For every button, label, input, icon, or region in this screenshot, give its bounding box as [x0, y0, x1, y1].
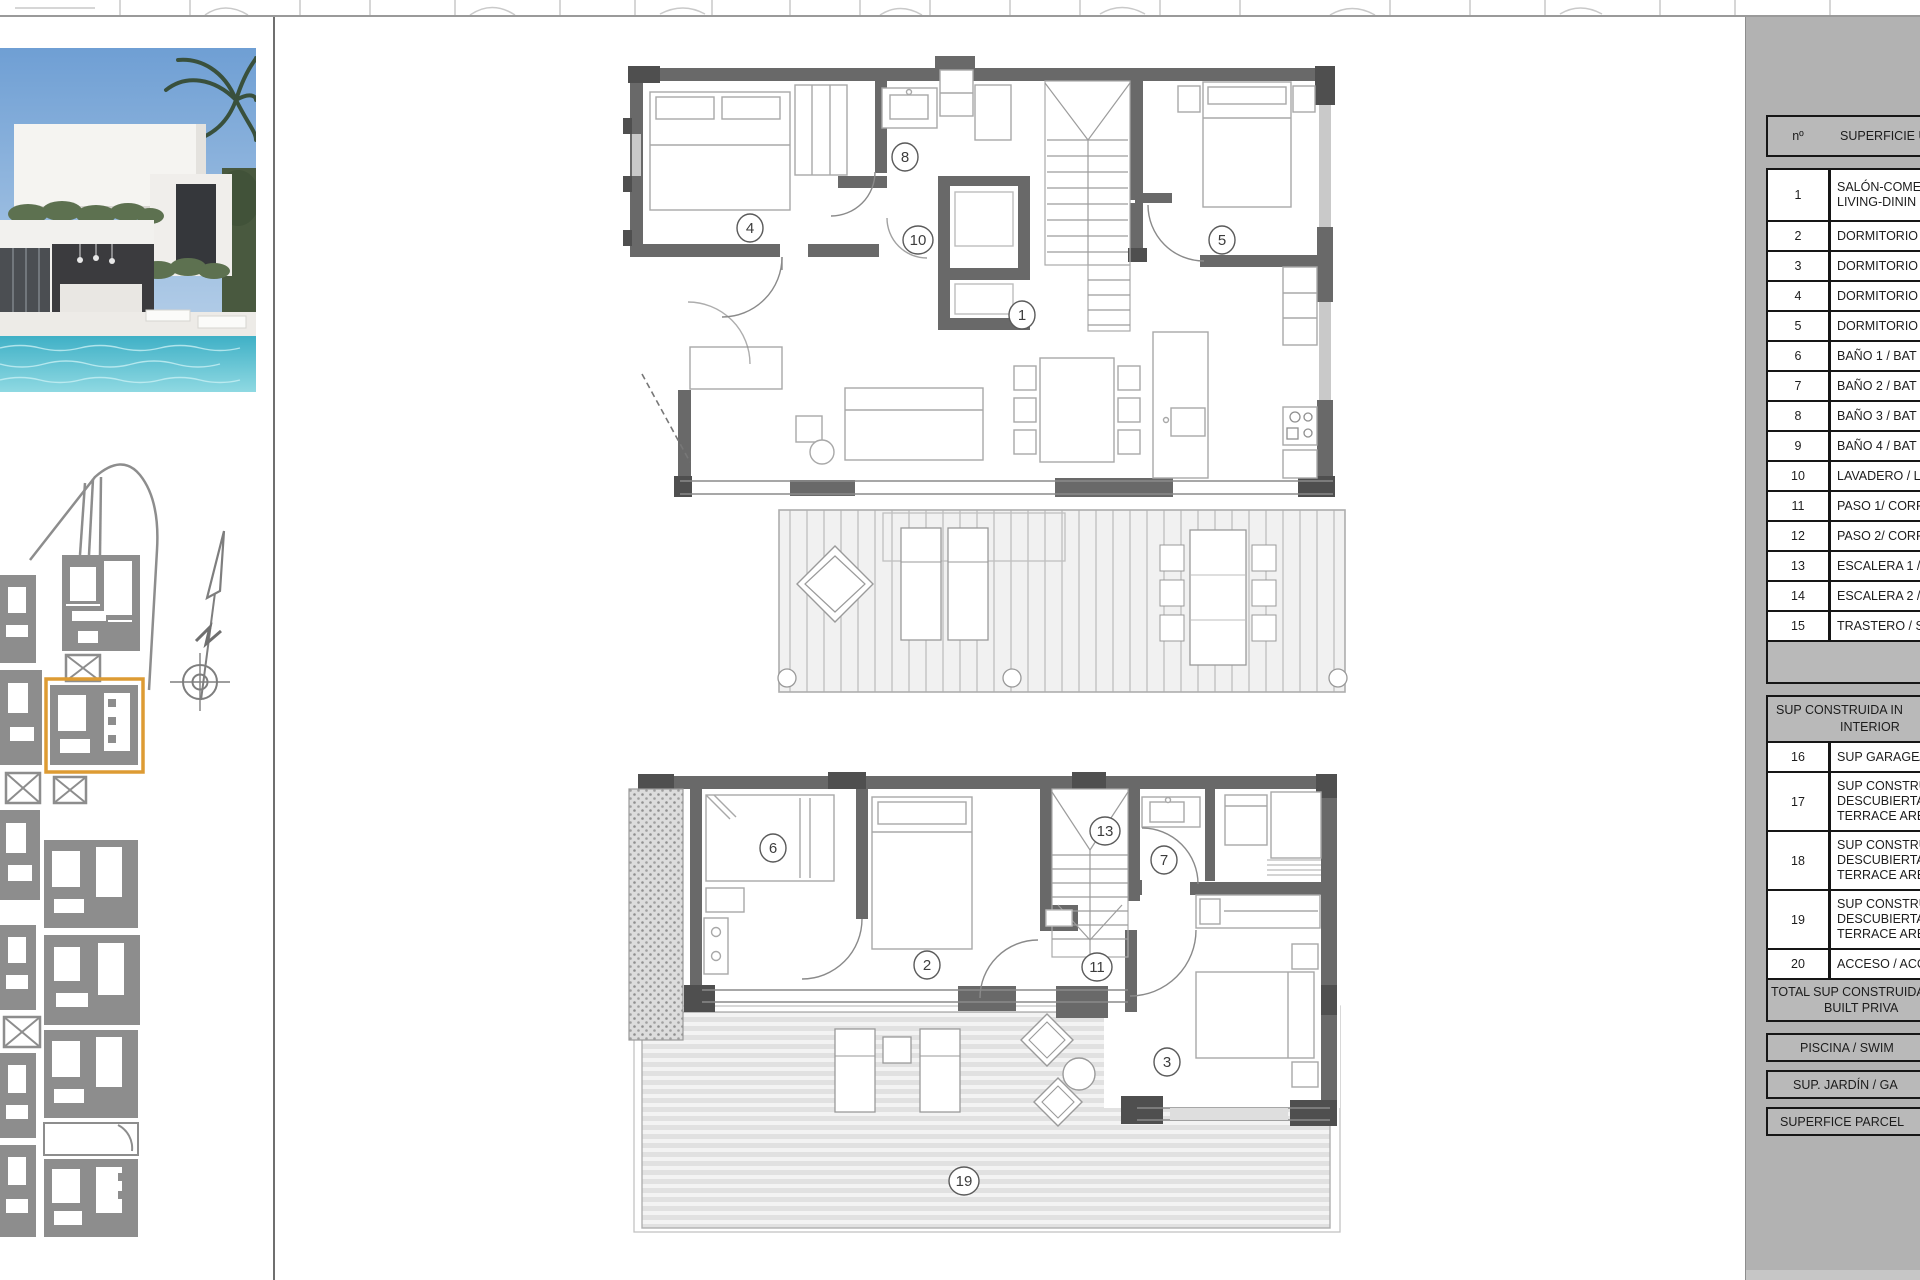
room-label-10: 10 — [903, 226, 933, 254]
total-line: TOTAL SUP CONSTRUIDA — [1768, 984, 1920, 1000]
row-desc: DESCUBIERTA — [1837, 794, 1920, 809]
row-num: 18 — [1768, 832, 1831, 889]
table-row: 4DORMITORIO — [1768, 282, 1920, 312]
vertical-divider — [273, 17, 275, 1280]
lounger — [146, 310, 190, 321]
table-gap — [1766, 157, 1920, 168]
room-label-7: 7 — [1151, 846, 1177, 874]
lounger — [198, 316, 246, 328]
table-row: 1 SALÓN-COMELIVING-DININ — [1768, 170, 1920, 222]
room-label-8: 8 — [892, 143, 918, 171]
top-crop-remnants — [0, 0, 1920, 15]
row-desc: SUP CONSTRU — [1837, 838, 1920, 853]
sheet-top-rule — [0, 15, 1920, 17]
villa-photo-art — [0, 48, 256, 392]
row-desc: DESCUBIERTA — [1837, 853, 1920, 868]
plot-surface-row: SUPERFICE PARCEL — [1766, 1107, 1920, 1136]
svg-text:6: 6 — [769, 840, 777, 857]
site-units — [0, 464, 157, 1237]
room-label-11: 11 — [1082, 953, 1112, 981]
row-desc: DORMITORIO — [1837, 229, 1920, 244]
row-desc: TERRACE AREA — [1837, 809, 1920, 824]
svg-text:13: 13 — [1097, 823, 1114, 840]
table-gap — [1766, 1099, 1920, 1107]
table-gap — [1766, 1022, 1920, 1033]
row-desc: BAÑO 2 / BAT — [1837, 379, 1920, 394]
site-plan — [0, 455, 250, 1245]
row-num: 13 — [1768, 552, 1831, 580]
svg-text:4: 4 — [746, 220, 754, 237]
table-row: 8BAÑO 3 / BAT — [1768, 402, 1920, 432]
table-row: 13ESCALERA 1 / — [1768, 552, 1920, 582]
svg-text:19: 19 — [956, 1173, 973, 1190]
tower-window — [176, 184, 216, 268]
row-desc: TERRACE AREA — [1837, 927, 1920, 942]
closet-stripes — [1267, 860, 1321, 875]
table-row: 10LAVADERO / L — [1768, 462, 1920, 492]
svg-text:11: 11 — [1089, 959, 1105, 976]
table-row: 6BAÑO 1 / BAT — [1768, 342, 1920, 372]
pool-surface-row: PISCINA / SWIM — [1766, 1033, 1920, 1062]
upper-floor-plan: 1 4 8 10 5 — [623, 45, 1355, 695]
row-num: 7 — [1768, 372, 1831, 400]
row-num: 11 — [1768, 492, 1831, 520]
room-label-5: 5 — [1209, 226, 1235, 254]
room-label-13: 13 — [1090, 817, 1120, 845]
table-row: 11PASO 1/ CORR — [1768, 492, 1920, 522]
row-desc: TERRACE AREA — [1837, 868, 1920, 883]
table-row: 15TRASTERO / S — [1768, 612, 1920, 642]
table-row: 7BAÑO 2 / BAT — [1768, 372, 1920, 402]
row-num: 20 — [1768, 950, 1831, 978]
section2-header-line: INTERIOR — [1768, 719, 1920, 736]
table-row: 17SUP CONSTRUDESCUBIERTATERRACE AREA — [1768, 773, 1920, 832]
row-num: 8 — [1768, 402, 1831, 430]
table-row: 9BAÑO 4 / BAT — [1768, 432, 1920, 462]
glass-wall — [0, 248, 50, 312]
row-desc: LIVING-DININ — [1837, 195, 1920, 210]
row-desc: TRASTERO / S — [1837, 619, 1920, 634]
svg-text:10: 10 — [910, 232, 927, 249]
room-label-19: 19 — [949, 1167, 979, 1195]
table-gap — [1766, 684, 1920, 695]
section2-header-line: SUP CONSTRUIDA IN — [1768, 702, 1920, 719]
row-desc: BAÑO 1 / BAT — [1837, 349, 1920, 364]
table-row: 18SUP CONSTRUDESCUBIERTATERRACE AREA — [1768, 832, 1920, 891]
table-row: 20ACCESO / ACC — [1768, 950, 1920, 980]
row-num: 17 — [1768, 773, 1831, 830]
row-num: 3 — [1768, 252, 1831, 280]
table-spacer-row — [1768, 642, 1920, 682]
row-desc: ACCESO / ACC — [1837, 957, 1920, 972]
floorplan-sheet: 1 4 8 10 5 — [0, 0, 1920, 1280]
table-body-2: SUP CONSTRUIDA IN INTERIOR 16SUP GARAGE/… — [1766, 695, 1920, 1022]
row-desc: PASO 2/ CORR — [1837, 529, 1920, 544]
bedroom3-window — [1170, 1108, 1288, 1120]
row-num: 5 — [1768, 312, 1831, 340]
terrace — [634, 906, 1340, 1232]
svg-text:8: 8 — [901, 149, 909, 166]
row-desc: BAÑO 4 / BAT — [1837, 439, 1920, 454]
table-row: 12PASO 2/ CORR — [1768, 522, 1920, 552]
row-num: 2 — [1768, 222, 1831, 250]
garden-surface-row: SUP. JARDÍN / GA — [1766, 1070, 1920, 1099]
row-num: 6 — [1768, 342, 1831, 370]
bottom-glazing — [680, 481, 1333, 494]
table-row: 14ESCALERA 2 / — [1768, 582, 1920, 612]
panel-bottom-band — [1746, 1270, 1920, 1280]
table-row: 3DORMITORIO — [1768, 252, 1920, 282]
table-body-1: 1 SALÓN-COMELIVING-DININ 2DORMITORIO 3DO… — [1766, 168, 1920, 684]
outdoor-sofa — [60, 284, 142, 312]
svg-text:3: 3 — [1163, 1054, 1171, 1071]
roof-deck — [778, 510, 1347, 692]
svg-text:7: 7 — [1160, 852, 1168, 869]
louvre-screen — [629, 789, 683, 1040]
table-row: 19SUP CONSTRUDESCUBIERTATERRACE AREA — [1768, 891, 1920, 950]
table-header-num: nº — [1768, 129, 1828, 143]
row-desc: DORMITORIO — [1837, 289, 1920, 304]
row-desc: PASO 1/ CORR — [1837, 499, 1920, 514]
row-desc: SUP GARAGE/ — [1837, 750, 1920, 765]
svg-text:2: 2 — [923, 957, 931, 974]
room-label-1: 1 — [1009, 301, 1035, 329]
svg-text:1: 1 — [1018, 307, 1026, 324]
row-num: 15 — [1768, 612, 1831, 640]
row-desc: DESCUBIERTA — [1837, 912, 1920, 927]
villa-photo — [0, 48, 256, 392]
row-num: 14 — [1768, 582, 1831, 610]
row-desc: LAVADERO / L — [1837, 469, 1920, 484]
total-row: TOTAL SUP CONSTRUIDA BUILT PRIVA — [1768, 980, 1920, 1020]
table-row: 5DORMITORIO — [1768, 312, 1920, 342]
row-desc: SUP CONSTRU — [1837, 897, 1920, 912]
row-num: 9 — [1768, 432, 1831, 460]
svg-text:5: 5 — [1218, 232, 1226, 249]
row-num: 4 — [1768, 282, 1831, 310]
room-label-2: 2 — [914, 951, 940, 979]
row-num: 16 — [1768, 743, 1831, 771]
total-line: BUILT PRIVA — [1768, 1000, 1920, 1016]
row-num: 19 — [1768, 891, 1831, 948]
row-desc: ESCALERA 1 / — [1837, 559, 1920, 574]
room-label-6: 6 — [760, 834, 786, 862]
table-header-row: nº SUPERFICIE Ú — [1766, 115, 1920, 157]
surface-table-panel: nº SUPERFICIE Ú 1 SALÓN-COMELIVING-DININ… — [1745, 17, 1920, 1280]
row-desc: DORMITORIO — [1837, 259, 1920, 274]
row-desc: SALÓN-COME — [1837, 180, 1920, 195]
row-desc: ESCALERA 2 / — [1837, 589, 1920, 604]
room-label-3: 3 — [1154, 1048, 1180, 1076]
surface-table: nº SUPERFICIE Ú 1 SALÓN-COMELIVING-DININ… — [1766, 115, 1920, 1136]
table-header-desc: SUPERFICIE Ú — [1828, 129, 1920, 143]
row-num: 12 — [1768, 522, 1831, 550]
room-label-4: 4 — [737, 214, 763, 242]
table-row: 2DORMITORIO — [1768, 222, 1920, 252]
row-desc: BAÑO 3 / BAT — [1837, 409, 1920, 424]
north-arrow — [170, 531, 230, 711]
table-gap — [1766, 1062, 1920, 1070]
section2-header: SUP CONSTRUIDA IN INTERIOR — [1768, 697, 1920, 743]
row-desc: SUP CONSTRU — [1837, 779, 1920, 794]
row-num: 1 — [1768, 170, 1831, 220]
stairs — [1045, 81, 1130, 331]
lower-floor-plan: 6 13 7 2 11 3 19 — [623, 768, 1353, 1240]
row-num: 10 — [1768, 462, 1831, 490]
table-row: 16SUP GARAGE/ — [1768, 743, 1920, 773]
row-desc: DORMITORIO — [1837, 319, 1920, 334]
